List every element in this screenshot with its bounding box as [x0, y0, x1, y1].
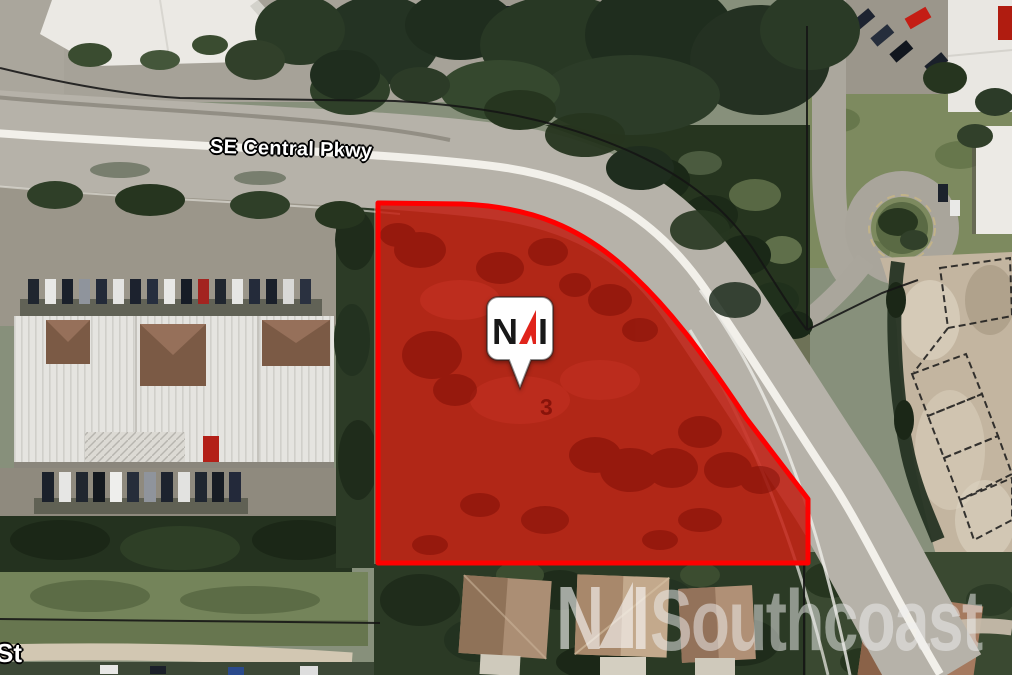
parcel-site-number: 3	[540, 394, 553, 421]
pin-letter-i: I	[538, 311, 548, 352]
map-pin-icon: N I	[483, 294, 557, 396]
pin-letter-n: N	[492, 311, 518, 352]
houses-bottom	[458, 574, 755, 675]
nai-map-pin[interactable]: N I	[483, 294, 557, 396]
cars-left-lot-row1	[20, 279, 322, 317]
street-label: SE Central Pkwy	[210, 136, 373, 164]
property-aerial-map: SE Central Pkwy St 3 N I N I Southcoast	[0, 0, 1012, 675]
building-left-complex	[14, 316, 334, 468]
cross-street-label: St	[0, 638, 22, 669]
